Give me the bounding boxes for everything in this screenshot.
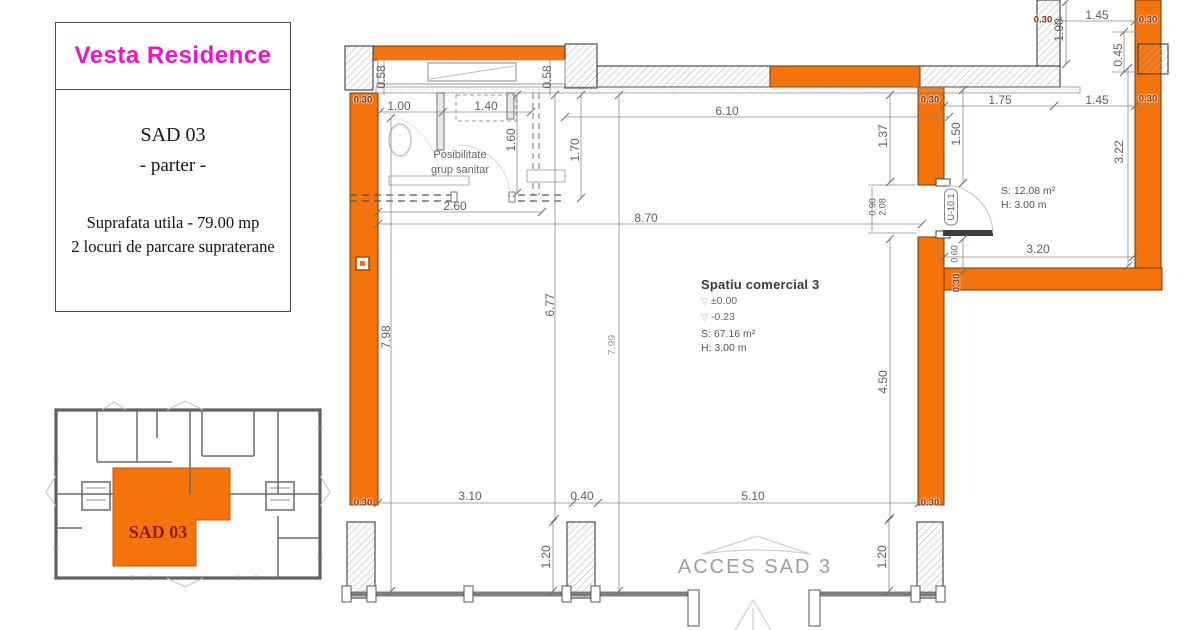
room-main-label: Spatiu comercial 3 ▽±0.00 ▽-0.23 S: 67.1… [701,278,819,355]
floor-plan-page: Vesta Residence SAD 03 - parter - Supraf… [0,0,1200,630]
dimension-label: 1.37 [877,124,889,147]
entrance-direction-arrow-icon [735,600,771,630]
level-upper-row: ▽±0.00 [701,296,819,307]
window-top [378,60,565,84]
dimension-label: 1.20 [540,545,552,568]
dimension-label: 6.10 [715,105,738,117]
room-side-height: H: 3.00 m [1001,198,1055,212]
room-main-height: H: 3.00 m [701,341,819,355]
level-lower-value: -0.23 [711,311,735,323]
dimension-label: 0.30 [1034,15,1053,25]
dimension-label: 1.45 [1085,9,1108,21]
level-lower-row: ▽-0.23 [701,312,819,323]
dimension-label: 5.10 [741,490,764,502]
dimension-label: 0.30 [952,274,962,293]
entrance-post-right [809,590,820,626]
door-code-label: U-10.1 [944,188,958,225]
dimension-label: 0.30 [354,498,373,508]
room-side-area: S: 12.08 m² [1001,184,1055,198]
dimension-label: 0.58 [541,65,553,88]
room-main-area: S: 67.16 m² [701,327,819,341]
main-floor-plan-drawing [0,0,1200,630]
outlet-symbol [356,257,369,270]
dimension-label: 3.22 [1113,140,1125,163]
dimension-label: 0.30 [1139,94,1158,104]
dimension-label: 0.30 [921,95,940,105]
dimension-label: 2.08 [879,198,888,216]
dimension-label: 8.70 [634,212,657,224]
dimension-label: 4.50 [877,370,889,393]
room-main-title: Spatiu comercial 3 [701,278,819,291]
interior-wall-strip [376,87,1080,93]
access-arrow-icon [703,536,810,554]
bathroom-note-line1: Posibilitate [399,148,521,163]
dimension-label: 3.10 [458,490,481,502]
main-floor-plan: Spatiu comercial 3 ▽±0.00 ▽-0.23 S: 67.1… [0,0,1200,630]
bathroom-note-line2: grup sanitar [399,163,521,178]
dimension-label: 0.30 [921,498,940,508]
dimension-label: 0.60 [951,245,960,263]
dimension-label: 0.30 [354,95,373,105]
dimension-label: 0.58 [375,65,387,88]
dimension-label: 1.00 [387,100,410,112]
dimension-label: 2.60 [443,200,466,212]
dimension-label: 1.75 [988,94,1011,106]
bathroom-note: Posibilitate grup sanitar [399,148,521,178]
level-triangle-icon: ▽ [701,313,708,322]
dimension-label: 1.40 [474,100,497,112]
dimension-label: 1.20 [876,545,888,568]
dimension-label: 1.45 [1085,94,1108,106]
room-side-label: S: 12.08 m² H: 3.00 m [1001,184,1055,212]
dimension-label: 1.60 [505,128,517,151]
dimension-label: 7.98 [380,325,392,348]
dimension-label: 1.50 [950,122,962,145]
dimension-label: 0.45 [1112,43,1124,66]
dimension-label: 7.99 [607,335,618,355]
level-triangle-icon: ▽ [701,297,708,306]
entrance-post-left [688,590,699,626]
dimension-label: 3.20 [1026,243,1049,255]
dimension-label: 1.70 [569,138,581,161]
storefront [342,536,945,630]
door-leaf [943,230,993,236]
room-main-attrs: S: 67.16 m² H: 3.00 m [701,327,819,355]
dimension-label: 0.30 [1139,15,1158,25]
dimension-label: 6.77 [544,293,556,316]
dimension-label: 0.90 [869,198,878,216]
dimension-label: 0.40 [570,490,593,502]
access-label: ACCES SAD 3 [648,557,862,577]
level-upper-value: ±0.00 [711,295,737,307]
dimension-label: 1.90 [1053,18,1065,41]
